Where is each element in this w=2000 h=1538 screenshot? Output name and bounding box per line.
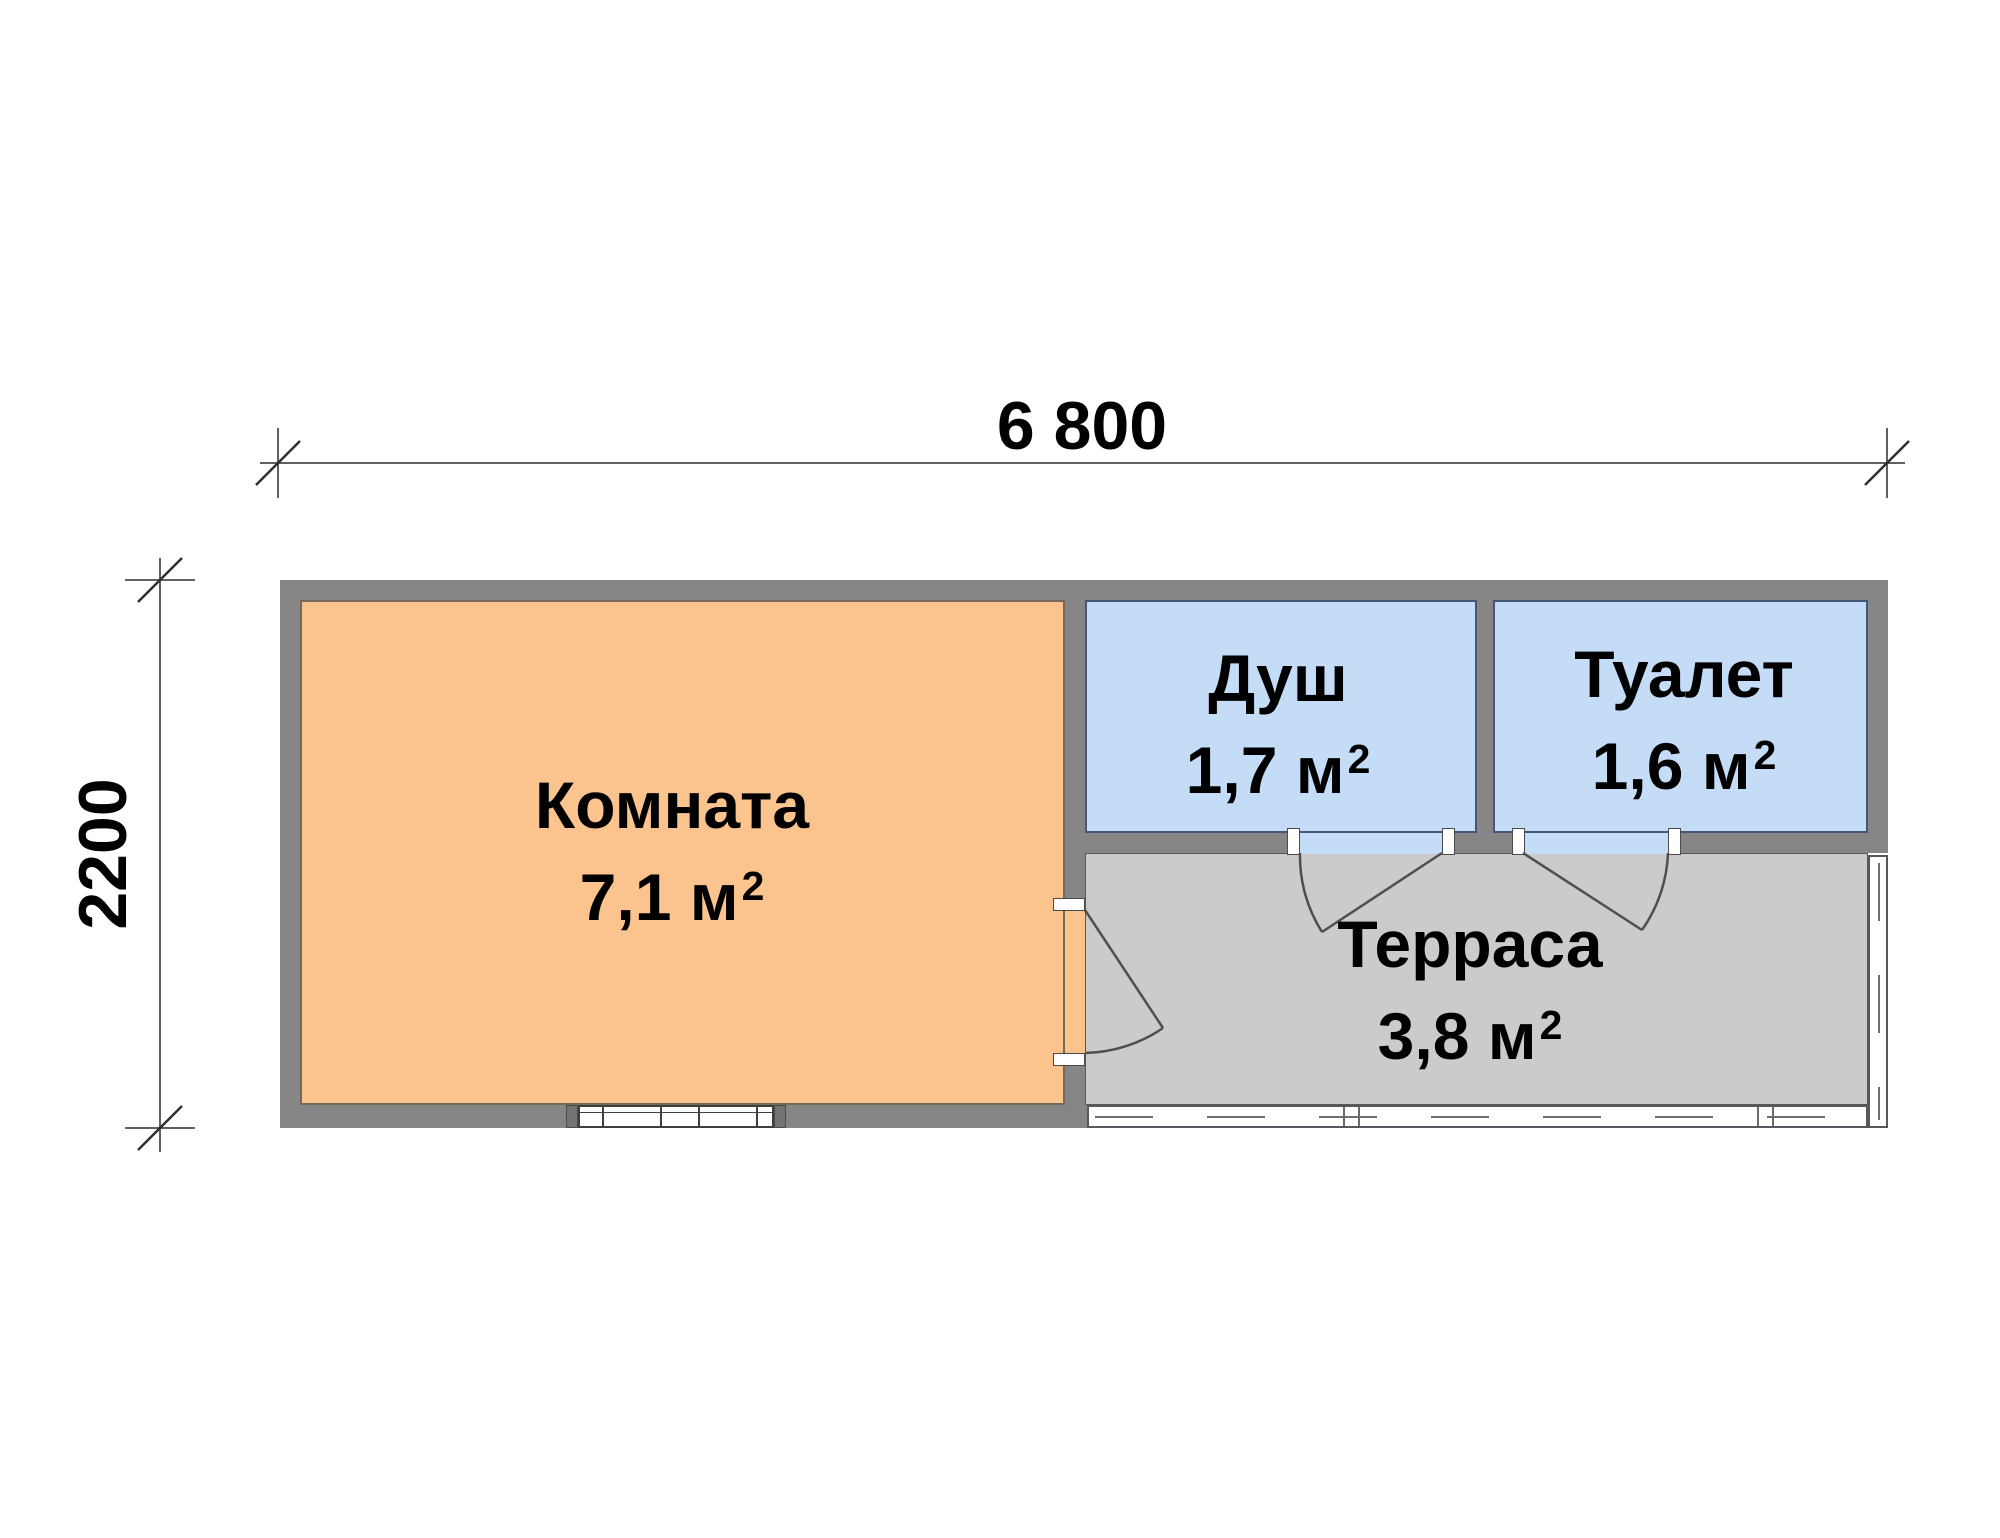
jamb-tualet-right [1668, 828, 1681, 855]
jamb-dush-left [1287, 828, 1300, 855]
door-opening-dush [1300, 833, 1442, 854]
room-label-komnata: Комната 7,1 м2 [535, 772, 809, 930]
terrace-railing-bottom [1087, 1105, 1868, 1128]
width-dimension-label: 6 800 [997, 392, 1167, 460]
jamb-dush-right [1442, 828, 1455, 855]
railing-dash-line [1878, 863, 1880, 1120]
room-area: 1,6 м2 [1574, 733, 1794, 799]
room-label-terrasa: Терраса 3,8 м2 [1337, 911, 1602, 1069]
wall-stub-between-doors [1453, 833, 1513, 853]
window-jamb-left [566, 1105, 578, 1128]
railing-dash-line [1095, 1116, 1860, 1118]
railing-post [1772, 1107, 1774, 1126]
railing-post [1343, 1107, 1345, 1126]
terrace-railing-right [1868, 855, 1888, 1128]
room-name: Душ [1186, 645, 1371, 711]
dimension-tick [256, 441, 300, 485]
room-label-dush: Душ 1,7 м2 [1186, 645, 1371, 803]
room-area: 1,7 м2 [1186, 737, 1371, 803]
window [578, 1105, 774, 1128]
wall-under-dush [1085, 833, 1290, 853]
room-label-tualet: Туалет 1,6 м2 [1574, 641, 1794, 799]
wall-dush-tualet-divider [1477, 598, 1493, 833]
window-mullion [602, 1107, 604, 1126]
room-name: Туалет [1574, 641, 1794, 707]
room-name: Терраса [1337, 911, 1602, 977]
window-mullion [660, 1107, 662, 1126]
window-frame-line [580, 1112, 772, 1113]
jamb-komnata-bottom [1053, 1053, 1085, 1066]
floor-plan-canvas: 6 800 2200 Комната 7,1 м2 Душ 1,7 м2 Туа… [0, 0, 2000, 1538]
wall-left [280, 580, 300, 1128]
door-opening-tualet [1523, 833, 1668, 854]
height-dimension-label: 2200 [69, 778, 137, 929]
jamb-tualet-left [1512, 828, 1525, 855]
room-name: Комната [535, 772, 809, 838]
railing-post [1358, 1107, 1360, 1126]
dimension-tick [138, 558, 182, 602]
dimension-tick [138, 1106, 182, 1150]
door-opening-komnata [1065, 908, 1085, 1055]
wall-right [1868, 580, 1888, 853]
railing-post [1757, 1107, 1759, 1126]
room-area: 7,1 м2 [535, 864, 809, 930]
window-mullion [698, 1107, 700, 1126]
wall-under-tualet [1680, 833, 1888, 853]
window-mullion [756, 1107, 758, 1126]
dimension-tick [1865, 441, 1909, 485]
room-area: 3,8 м2 [1337, 1003, 1602, 1069]
jamb-komnata-top [1053, 898, 1085, 911]
window-jamb-right [774, 1105, 786, 1128]
